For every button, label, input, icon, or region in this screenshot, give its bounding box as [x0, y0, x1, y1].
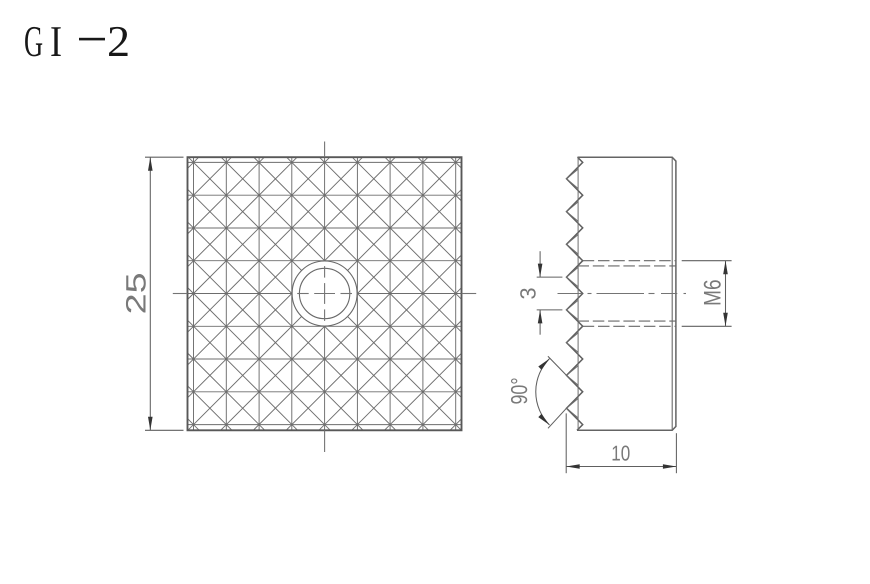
svg-text:10: 10 [611, 441, 630, 465]
svg-text:I: I [50, 17, 62, 66]
svg-text:G: G [24, 17, 43, 66]
svg-text:3: 3 [515, 287, 540, 299]
svg-text:2: 2 [107, 17, 130, 66]
svg-text:M6: M6 [700, 280, 727, 306]
svg-text:25: 25 [120, 272, 151, 314]
svg-text:90°: 90° [506, 378, 532, 405]
